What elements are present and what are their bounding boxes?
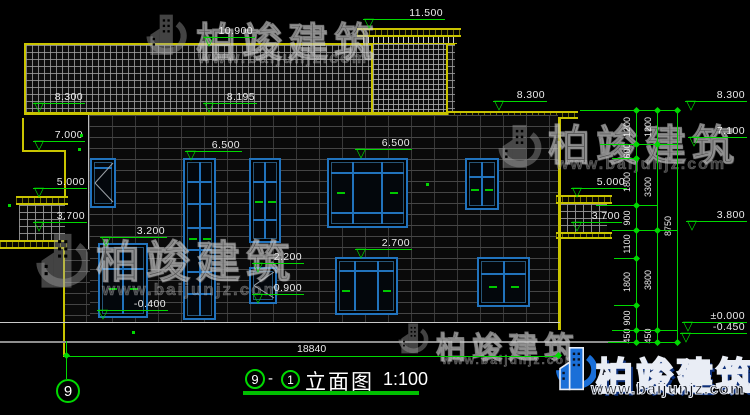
level-triangle-icon: ▽ xyxy=(364,18,374,30)
dim-extension-line xyxy=(614,305,638,306)
dim-value: 1200 xyxy=(622,117,632,137)
elevation-marker: 6.500▽ xyxy=(355,149,412,150)
reference-dot xyxy=(80,134,83,137)
elevation-marker: 5.000▽ xyxy=(33,188,87,189)
dim-extension-line xyxy=(596,205,658,206)
dim-value: 1800 xyxy=(622,271,632,291)
elevation-marker: 8.300▽ xyxy=(685,101,747,102)
dim-extension-line xyxy=(612,158,637,159)
elevation-value: -0.450 xyxy=(713,321,745,333)
dim-value: 1100 xyxy=(622,234,632,253)
dim-value: 900 xyxy=(622,310,632,325)
level-triangle-icon: ▽ xyxy=(204,102,214,114)
level-triangle-icon: ▽ xyxy=(572,187,582,199)
elevation-value: 5.000 xyxy=(597,176,625,188)
elevation-value: 3.700 xyxy=(57,210,85,222)
grid-bubble-9: 9 xyxy=(56,379,80,403)
elevation-value: 2.700 xyxy=(382,237,410,249)
dim-value: 1200 xyxy=(643,117,653,137)
overall-width-dim: 18840 xyxy=(297,343,326,355)
dim-extension-line xyxy=(608,342,678,343)
elevation-value: 3.200 xyxy=(137,225,165,237)
elevation-value: -0.400 xyxy=(134,298,166,310)
elevation-marker: 7.000▽ xyxy=(33,141,85,142)
elevation-marker: 3.700▽ xyxy=(33,222,87,223)
level-triangle-icon: ▽ xyxy=(687,220,697,232)
elevation-value: 5.000 xyxy=(57,176,85,188)
elevation-marker: 8.195▽ xyxy=(203,103,257,104)
elevation-marker: 8.300▽ xyxy=(33,103,85,104)
elevation-marker: 7.100▽ xyxy=(688,137,747,138)
level-triangle-icon: ▽ xyxy=(253,262,263,274)
elevation-marker: 10.900▽ xyxy=(203,37,255,38)
elevation-marker: 3.700▽ xyxy=(571,222,622,223)
level-triangle-icon: ▽ xyxy=(572,221,582,233)
reference-dot xyxy=(132,331,135,334)
level-triangle-icon: ▽ xyxy=(204,36,214,48)
dim-value: 900 xyxy=(622,210,632,225)
elevation-value: 2.200 xyxy=(274,251,302,263)
title-underline xyxy=(243,391,419,395)
dim-value: 1800 xyxy=(622,171,632,191)
dim-extension-line xyxy=(600,144,678,145)
elevation-marker: 5.000▽ xyxy=(571,188,627,189)
elevation-value: 10.900 xyxy=(218,25,253,37)
level-triangle-icon: ▽ xyxy=(689,136,699,148)
elevation-marker: 6.500▽ xyxy=(185,151,242,152)
elevation-value: 11.500 xyxy=(409,7,443,19)
level-triangle-icon: ▽ xyxy=(356,248,366,260)
grid-line-9 xyxy=(66,341,67,379)
dim-value: 600 xyxy=(622,143,632,158)
level-triangle-icon: ▽ xyxy=(101,236,111,248)
level-triangle-icon: ▽ xyxy=(686,100,696,112)
elevation-marker: 2.200▽ xyxy=(252,263,304,264)
level-triangle-icon: ▽ xyxy=(253,293,263,305)
title-grid-right-label: 1 xyxy=(287,373,294,387)
title-grid-bubble-left: 9 xyxy=(245,369,265,389)
elevation-marker: 0.900▽ xyxy=(252,294,304,295)
elevation-marker: 11.500▽ xyxy=(363,19,445,20)
level-triangle-icon: ▽ xyxy=(34,102,44,114)
elevation-marker: 8.300▽ xyxy=(493,101,547,102)
elevation-marker: 3.200▽ xyxy=(100,237,167,238)
elevation-value: 3.700 xyxy=(592,210,620,222)
dim-extension-line xyxy=(612,230,678,231)
grid-bubble-9-label: 9 xyxy=(64,383,72,400)
drawing-scale: 1:100 xyxy=(383,369,428,390)
level-triangle-icon: ▽ xyxy=(356,148,366,160)
title-grid-left-label: 9 xyxy=(251,372,258,387)
elevation-value: 6.500 xyxy=(212,139,240,151)
elevation-value: 6.500 xyxy=(382,137,410,149)
elevation-value: 7.100 xyxy=(717,125,745,137)
level-triangle-icon: ▽ xyxy=(98,309,108,321)
elevation-marker: -0.450▽ xyxy=(680,333,747,334)
brand-logo-icon xyxy=(548,342,596,408)
dim-extension-line xyxy=(612,330,678,331)
elevation-value: 8.300 xyxy=(717,89,745,101)
elevation-marker: 3.800▽ xyxy=(686,221,747,222)
level-triangle-icon: ▽ xyxy=(681,332,691,344)
title-grid-bubble-right: 1 xyxy=(281,370,300,389)
dim-value: 8750 xyxy=(663,216,673,236)
reference-dot xyxy=(78,148,81,151)
elevation-value: 3.800 xyxy=(717,209,745,221)
reference-dot xyxy=(426,183,429,186)
elevation-value: 8.300 xyxy=(55,91,83,103)
dim-value: 3300 xyxy=(643,177,653,197)
level-triangle-icon: ▽ xyxy=(34,221,44,233)
elevation-marker: -0.400▽ xyxy=(97,310,168,311)
dim-value: 3800 xyxy=(643,270,653,290)
brand-watermark-site: www.baijunjz.com xyxy=(591,381,745,399)
reference-dot xyxy=(8,204,11,207)
elevation-value: 7.000 xyxy=(55,129,83,141)
level-triangle-icon: ▽ xyxy=(186,150,196,162)
dim-extension-line xyxy=(614,258,638,259)
level-triangle-icon: ▽ xyxy=(494,100,504,112)
elevation-value: 8.300 xyxy=(517,89,545,101)
elevation-drawing-canvas: 柏竣建筑www.baijunjz.com柏竣建筑www.baijunjz.com… xyxy=(0,0,750,415)
title-separator: - xyxy=(268,370,273,387)
elevation-value: 8.195 xyxy=(227,91,255,103)
elevation-marker: 2.700▽ xyxy=(355,249,412,250)
dim-extension-line xyxy=(580,110,678,111)
level-triangle-icon: ▽ xyxy=(34,187,44,199)
elevation-value: 0.900 xyxy=(274,282,302,294)
level-triangle-icon: ▽ xyxy=(34,140,44,152)
overall-dim-line xyxy=(67,356,561,357)
